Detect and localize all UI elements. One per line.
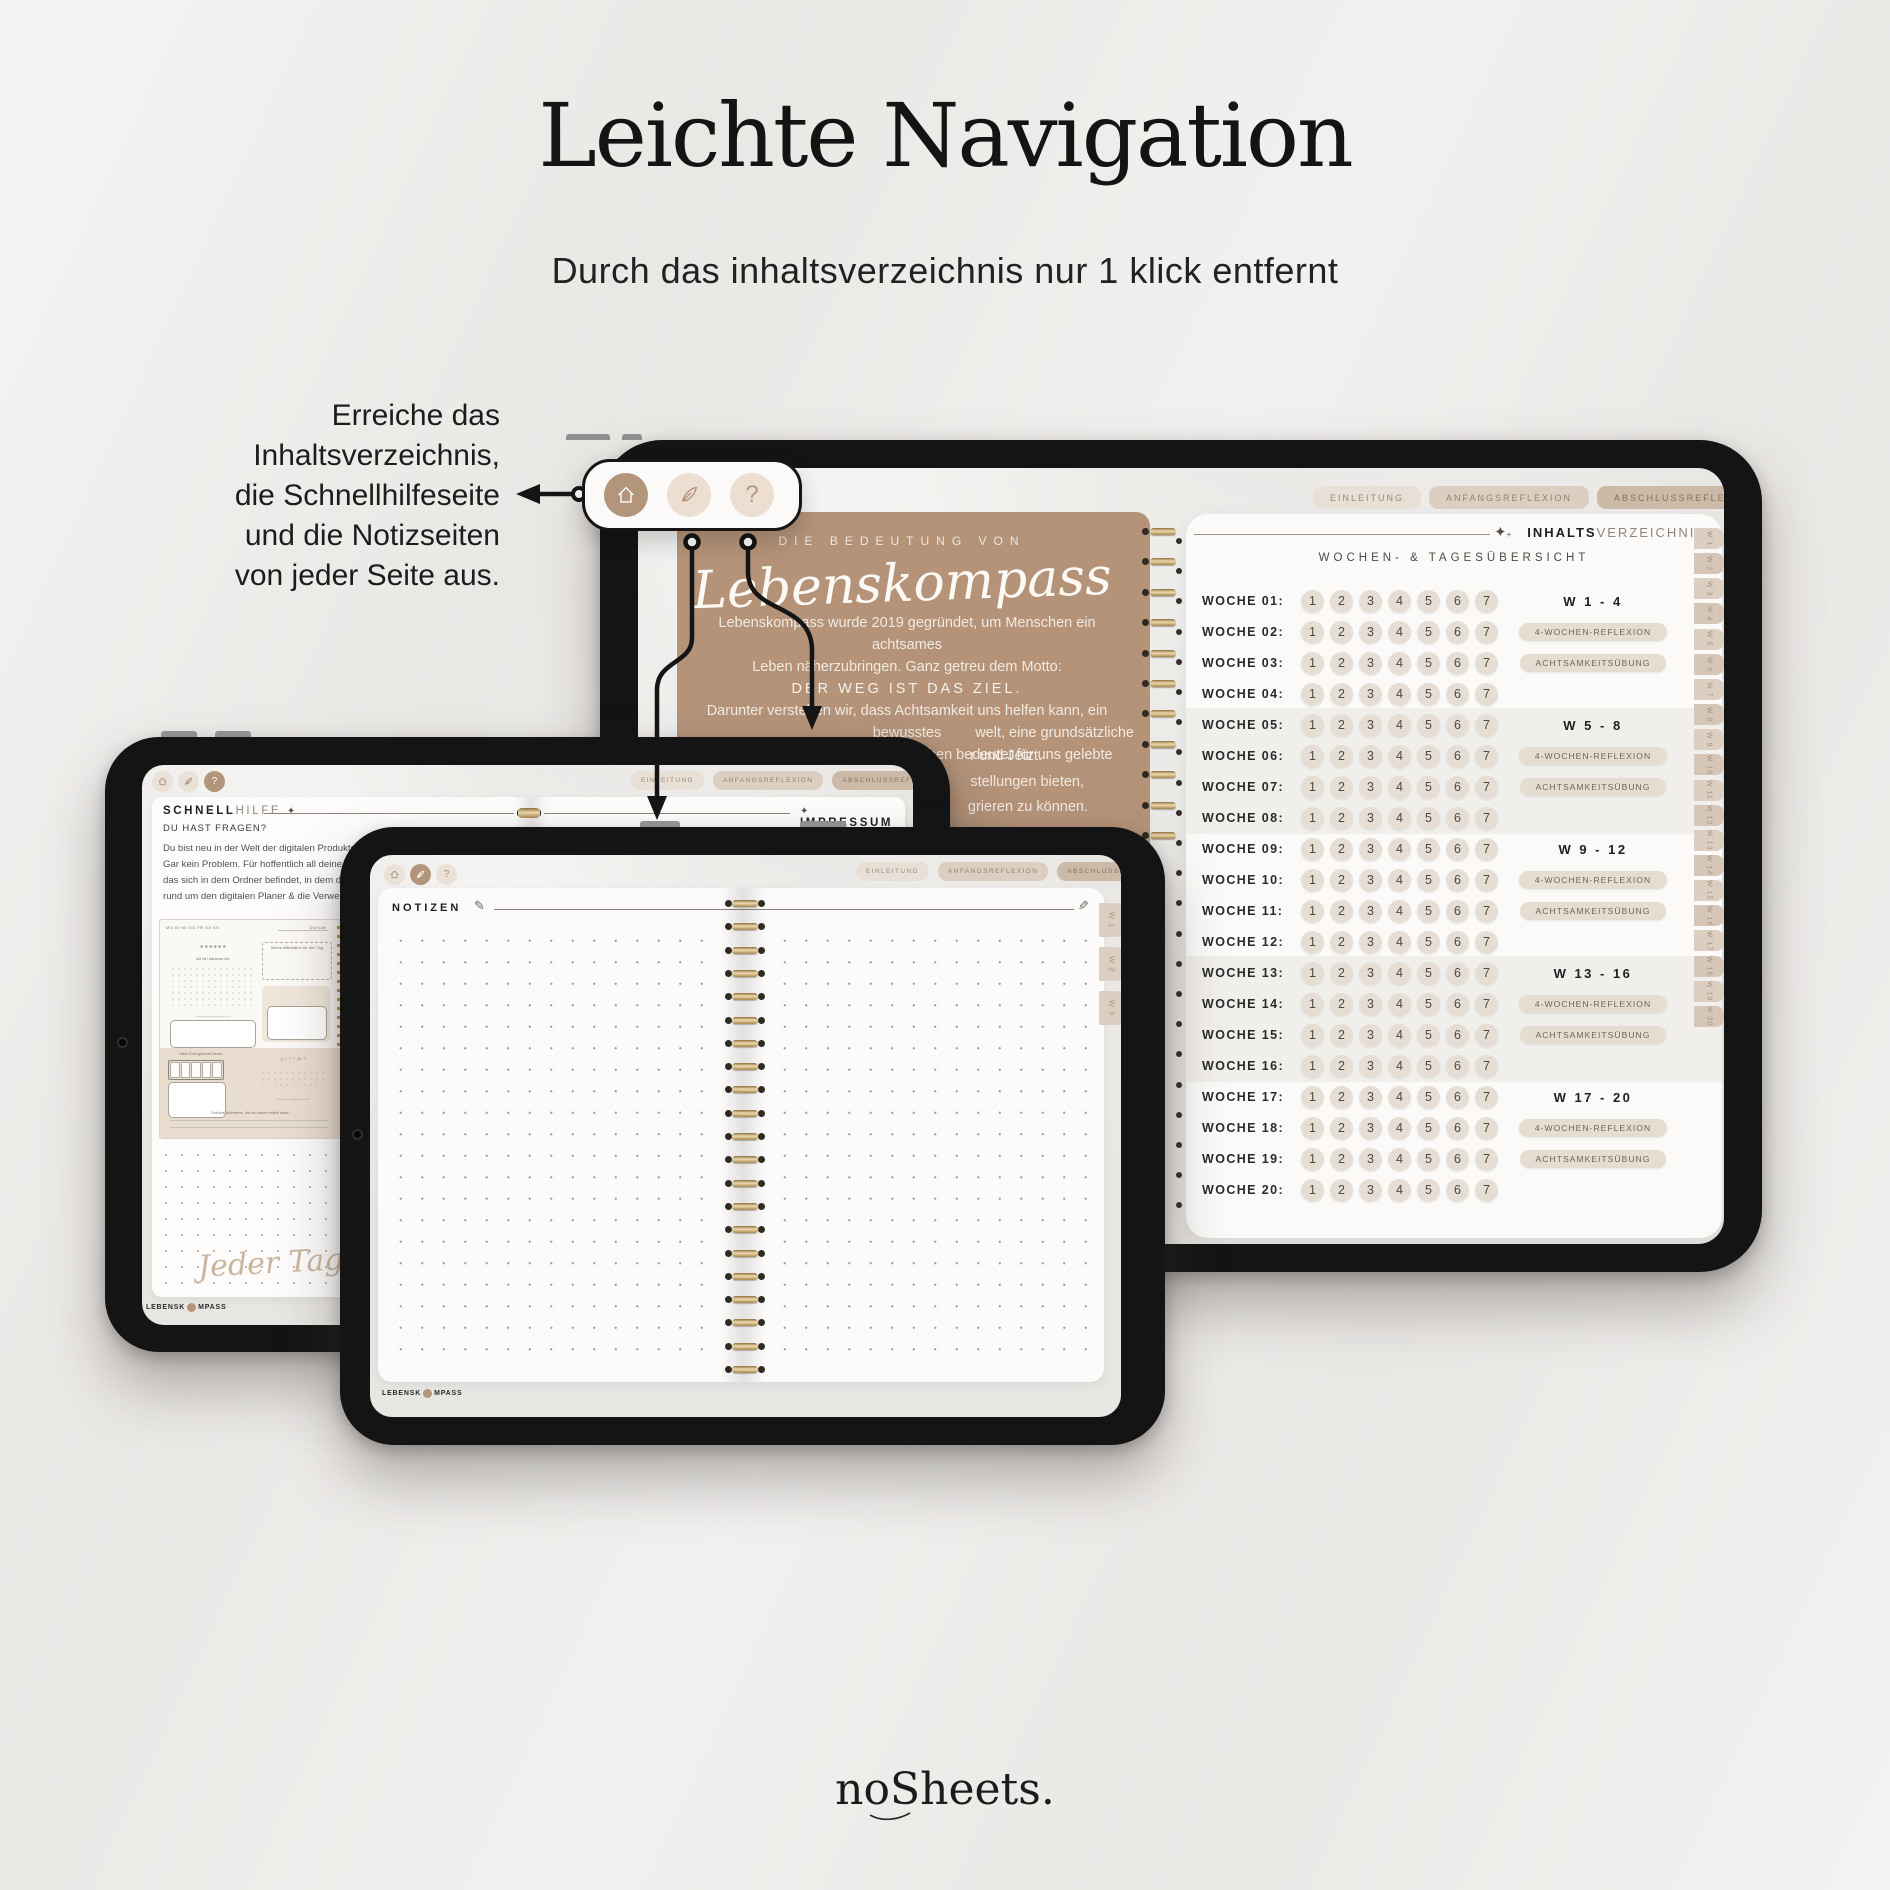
tab-abschlussreflexion[interactable]: ABSCHLUSSREFLEXION [1597, 486, 1724, 509]
dot-grid-right [774, 930, 1092, 1368]
spiral-coil [732, 970, 758, 977]
spiral-coil [732, 1086, 758, 1093]
tab-einleitung[interactable]: EINLEITUNG [1313, 486, 1421, 509]
day-link[interactable]: 3 [1359, 1179, 1382, 1202]
day-link[interactable]: 2 [1330, 1117, 1353, 1140]
week-label[interactable]: WOCHE 13: [1202, 966, 1301, 980]
page-nav-buttons: ? [152, 771, 225, 792]
side-tab-W12[interactable]: W 12 [1694, 805, 1724, 826]
day-link[interactable]: 7 [1475, 745, 1498, 768]
intro-line: DER WEG IST DAS ZIEL. [691, 678, 1123, 700]
mini-label: Mein Energielevel heute [166, 1051, 236, 1056]
pen-icon: ✎ [474, 898, 485, 914]
spiral-coil [1150, 741, 1176, 748]
day-link[interactable]: 4 [1388, 652, 1411, 675]
home-icon[interactable] [384, 864, 405, 885]
day-link[interactable]: 4 [1388, 900, 1411, 923]
day-link[interactable]: 4 [1388, 776, 1411, 799]
day-link[interactable]: 7 [1475, 1086, 1498, 1109]
day-link[interactable]: 4 [1388, 1117, 1411, 1140]
day-link[interactable]: 5 [1417, 962, 1440, 985]
day-link[interactable]: 3 [1359, 1148, 1382, 1171]
day-link[interactable]: 7 [1475, 621, 1498, 644]
side-tab-W18[interactable]: W 18 [1694, 956, 1724, 977]
toc-row: WOCHE 10:12345674-WOCHEN-REFLEXION [1186, 865, 1722, 896]
day-link[interactable]: 6 [1446, 1117, 1469, 1140]
mini-label: ✻ ✻ ✻ ✻ ✻ ✻ [168, 944, 258, 949]
day-link[interactable]: 2 [1330, 776, 1353, 799]
mini-label: △ ○ ♡ ☾ ◎ ☽ [256, 1056, 330, 1061]
day-link[interactable]: 1 [1301, 1055, 1324, 1078]
day-link[interactable]: 2 [1330, 714, 1353, 737]
week-label[interactable]: WOCHE 20: [1202, 1183, 1301, 1197]
achtsamkeit-pill[interactable]: ACHTSAMKEITSÜBUNG [1520, 778, 1667, 796]
spiral-dot [1176, 900, 1182, 906]
week-label[interactable]: WOCHE 18: [1202, 1121, 1301, 1135]
side-tab-W8[interactable]: W 8 [1694, 704, 1724, 725]
day-link[interactable]: 4 [1388, 683, 1411, 706]
day-link[interactable]: 1 [1301, 652, 1324, 675]
week-label[interactable]: WOCHE 15: [1202, 1028, 1301, 1042]
side-tab-W3[interactable]: W 3 [1099, 991, 1121, 1025]
day-link[interactable]: 6 [1446, 652, 1469, 675]
callout-line: von jeder Seite aus. [140, 556, 500, 596]
spiral-coil [732, 923, 758, 930]
spiral-coil [732, 1133, 758, 1140]
day-link[interactable]: 4 [1388, 1179, 1411, 1202]
divider [1194, 534, 1490, 535]
marketing-graphic: Leichte Navigation Durch das inhaltsverz… [0, 0, 1890, 1890]
spiral-coil [732, 993, 758, 1000]
spiral-coil [1150, 832, 1176, 839]
day-link[interactable]: 5 [1417, 621, 1440, 644]
day-link[interactable]: 5 [1417, 993, 1440, 1016]
day-link[interactable]: 3 [1359, 838, 1382, 861]
day-link[interactable]: 1 [1301, 838, 1324, 861]
day-link[interactable]: 7 [1475, 993, 1498, 1016]
day-link[interactable]: 6 [1446, 838, 1469, 861]
notizen-page[interactable]: NOTIZEN ✎ ✎ [378, 888, 1104, 1382]
day-link[interactable]: 7 [1475, 683, 1498, 706]
help-button[interactable]: ? [730, 473, 774, 517]
underline-squiggle [868, 1810, 932, 1822]
week-label[interactable]: WOCHE 07: [1202, 780, 1301, 794]
day-link[interactable]: 7 [1475, 776, 1498, 799]
spiral-coil [732, 1156, 758, 1163]
side-tab-W17[interactable]: W 17 [1694, 930, 1724, 951]
day-link[interactable]: 2 [1330, 838, 1353, 861]
reflexion-pill[interactable]: 4-WOCHEN-REFLEXION [1519, 871, 1667, 889]
day-link[interactable]: 4 [1388, 621, 1411, 644]
toc-row: WOCHE 02:12345674-WOCHEN-REFLEXION [1186, 617, 1722, 648]
day-link[interactable]: 3 [1359, 590, 1382, 613]
feather-pen-icon [678, 484, 700, 506]
day-link[interactable]: 4 [1388, 745, 1411, 768]
daily-page-thumbnail[interactable]: MO DI MI DO FR SA SODATUM ✻ ✻ ✻ ✻ ✻ ✻ Ic… [159, 919, 341, 1139]
day-link[interactable]: 4 [1388, 1148, 1411, 1171]
day-link[interactable]: 6 [1446, 931, 1469, 954]
day-link[interactable]: 6 [1446, 1055, 1469, 1078]
week-label[interactable]: WOCHE 08: [1202, 811, 1301, 825]
day-link[interactable]: 2 [1330, 1179, 1353, 1202]
day-link[interactable]: 2 [1330, 869, 1353, 892]
day-link[interactable]: 5 [1417, 745, 1440, 768]
day-link[interactable]: 4 [1388, 807, 1411, 830]
side-tab-W2[interactable]: W 2 [1694, 553, 1724, 574]
section-tabs: EINLEITUNGANFANGSREFLEXIONABSCHLUSSREFLE… [856, 862, 1121, 881]
toc-row: WOCHE 15:1234567ACHTSAMKEITSÜBUNG [1186, 1020, 1722, 1051]
day-link[interactable]: 1 [1301, 900, 1324, 923]
day-link[interactable]: 1 [1301, 745, 1324, 768]
spiral-coil [1150, 528, 1176, 535]
row-extra: ACHTSAMKEITSÜBUNG [1518, 1150, 1668, 1168]
day-link[interactable]: 2 [1330, 931, 1353, 954]
spiral-dot [1176, 1082, 1182, 1088]
achtsamkeit-pill[interactable]: ACHTSAMKEITSÜBUNG [1520, 1026, 1667, 1044]
day-link[interactable]: 6 [1446, 621, 1469, 644]
achtsamkeit-pill[interactable]: ACHTSAMKEITSÜBUNG [1520, 1150, 1667, 1168]
day-link[interactable]: 6 [1446, 590, 1469, 613]
tab-abschlussreflexion[interactable]: ABSCHLUSSREFLEXION [1057, 862, 1121, 881]
day-link[interactable]: 7 [1475, 652, 1498, 675]
day-link[interactable]: 7 [1475, 1055, 1498, 1078]
toc-row: WOCHE 08:1234567 [1186, 803, 1722, 834]
question-mark-icon: ? [745, 481, 758, 509]
day-link[interactable]: 5 [1417, 714, 1440, 737]
week-label[interactable]: WOCHE 16: [1202, 1059, 1301, 1073]
brand-logo: noSheets. [0, 1764, 1890, 1815]
day-link[interactable]: 6 [1446, 993, 1469, 1016]
day-link[interactable]: 7 [1475, 900, 1498, 923]
day-link[interactable]: 5 [1417, 1055, 1440, 1078]
reflexion-pill[interactable]: 4-WOCHEN-REFLEXION [1519, 995, 1667, 1013]
day-link[interactable]: 2 [1330, 1086, 1353, 1109]
day-link[interactable]: 7 [1475, 1148, 1498, 1171]
day-link[interactable]: 3 [1359, 869, 1382, 892]
side-tab-W9[interactable]: W 9 [1694, 729, 1724, 750]
day-link[interactable]: 3 [1359, 993, 1382, 1016]
day-link[interactable]: 5 [1417, 900, 1440, 923]
camera-icon [117, 1037, 128, 1048]
day-link[interactable]: 7 [1475, 807, 1498, 830]
day-link[interactable]: 4 [1388, 1024, 1411, 1047]
side-tab-W13[interactable]: W 13 [1694, 830, 1724, 851]
day-link[interactable]: 5 [1417, 1024, 1440, 1047]
row-extra: W 1 - 4 [1518, 594, 1668, 609]
row-extra: W 13 - 16 [1518, 966, 1668, 981]
spiral-coil [732, 1250, 758, 1257]
week-label[interactable]: WOCHE 06: [1202, 749, 1301, 763]
day-link[interactable]: 6 [1446, 1148, 1469, 1171]
day-link[interactable]: 3 [1359, 652, 1382, 675]
day-link[interactable]: 2 [1330, 1148, 1353, 1171]
spiral-dot [1176, 1051, 1182, 1057]
side-tab-W20[interactable]: W 20 [1694, 1006, 1724, 1027]
side-tab-W5[interactable]: W 5 [1694, 629, 1724, 650]
toc-row: WOCHE 09:1234567W 9 - 12 [1186, 834, 1722, 865]
tab-anfangsreflexion[interactable]: ANFANGSREFLEXION [713, 771, 823, 790]
help-icon[interactable]: ? [204, 771, 225, 792]
day-link[interactable]: 2 [1330, 590, 1353, 613]
day-link[interactable]: 3 [1359, 776, 1382, 799]
day-link[interactable]: 4 [1388, 869, 1411, 892]
mini-label: ________________ [168, 1012, 258, 1017]
day-link[interactable]: 1 [1301, 1179, 1324, 1202]
day-link[interactable]: 7 [1475, 590, 1498, 613]
day-link[interactable]: 3 [1359, 621, 1382, 644]
week-label[interactable]: WOCHE 14: [1202, 997, 1301, 1011]
pen-button[interactable] [667, 473, 711, 517]
day-link[interactable]: 6 [1446, 807, 1469, 830]
day-link[interactable]: 1 [1301, 869, 1324, 892]
day-link[interactable]: 1 [1301, 1086, 1324, 1109]
section-tabs: EINLEITUNGANFANGSREFLEXIONABSCHLUSSREFLE… [631, 771, 913, 790]
week-label[interactable]: WOCHE 12: [1202, 935, 1301, 949]
achtsamkeit-pill[interactable]: ACHTSAMKEITSÜBUNG [1520, 654, 1667, 672]
day-link[interactable]: 7 [1475, 1117, 1498, 1140]
day-link[interactable]: 1 [1301, 1024, 1324, 1047]
row-extra: W 9 - 12 [1518, 842, 1668, 857]
tab-einleitung[interactable]: EINLEITUNG [631, 771, 704, 790]
day-link[interactable]: 5 [1417, 1179, 1440, 1202]
row-extra: ACHTSAMKEITSÜBUNG [1518, 778, 1668, 796]
day-link[interactable]: 6 [1446, 1024, 1469, 1047]
day-link[interactable]: 1 [1301, 931, 1324, 954]
side-tab-W14[interactable]: W 14 [1694, 855, 1724, 876]
mini-evening-section: Mein Energielevel heute △ ○ ♡ ☾ ◎ ☽ ○———… [160, 1048, 340, 1138]
toc-row: WOCHE 12:1234567 [1186, 927, 1722, 958]
reflexion-pill[interactable]: 4-WOCHEN-REFLEXION [1519, 623, 1667, 641]
side-tab-W3[interactable]: W 3 [1694, 578, 1724, 599]
day-link[interactable]: 2 [1330, 652, 1353, 675]
day-link[interactable]: 3 [1359, 807, 1382, 830]
reflexion-pill[interactable]: 4-WOCHEN-REFLEXION [1519, 747, 1667, 765]
day-link[interactable]: 3 [1359, 900, 1382, 923]
pen-icon[interactable] [178, 771, 199, 792]
spiral-coil [732, 1296, 758, 1303]
spiral-dot [1176, 870, 1182, 876]
week-label[interactable]: WOCHE 09: [1202, 842, 1301, 856]
day-link[interactable]: 2 [1330, 1055, 1353, 1078]
spiral-dot [1176, 629, 1182, 635]
week-label[interactable]: WOCHE 05: [1202, 718, 1301, 732]
spiral-dot [1176, 810, 1182, 816]
day-link[interactable]: 1 [1301, 590, 1324, 613]
home-button[interactable] [604, 473, 648, 517]
tablet-volume-button [161, 731, 197, 737]
day-link[interactable]: 6 [1446, 745, 1469, 768]
side-tab-W15[interactable]: W 15 [1694, 880, 1724, 901]
day-link[interactable]: 2 [1330, 900, 1353, 923]
week-label[interactable]: WOCHE 01: [1202, 594, 1301, 608]
day-link[interactable]: 5 [1417, 776, 1440, 799]
toc-row: WOCHE 07:1234567ACHTSAMKEITSÜBUNG [1186, 772, 1722, 803]
row-extra: 4-WOCHEN-REFLEXION [1518, 1119, 1668, 1137]
day-link[interactable]: 6 [1446, 869, 1469, 892]
spiral-dot [1176, 1142, 1182, 1148]
mini-box [170, 1020, 256, 1048]
day-link[interactable]: 3 [1359, 1055, 1382, 1078]
side-tab-W4[interactable]: W 4 [1694, 603, 1724, 624]
day-link[interactable]: 6 [1446, 714, 1469, 737]
day-link[interactable]: 1 [1301, 993, 1324, 1016]
day-link[interactable]: 7 [1475, 962, 1498, 985]
day-link[interactable]: 1 [1301, 714, 1324, 737]
day-link[interactable]: 3 [1359, 745, 1382, 768]
day-link[interactable]: 7 [1475, 1024, 1498, 1047]
day-link[interactable]: 2 [1330, 993, 1353, 1016]
side-tab-W1[interactable]: W 1 [1694, 528, 1724, 549]
tab-anfangsreflexion[interactable]: ANFANGSREFLEXION [1429, 486, 1589, 509]
spiral-coil [732, 1226, 758, 1233]
row-extra: ACHTSAMKEITSÜBUNG [1518, 1026, 1668, 1044]
day-link[interactable]: 2 [1330, 745, 1353, 768]
day-link[interactable]: 5 [1417, 931, 1440, 954]
spiral-coil [732, 1366, 758, 1373]
spiral-dot [1176, 961, 1182, 967]
day-link[interactable]: 4 [1388, 962, 1411, 985]
day-link[interactable]: 2 [1330, 683, 1353, 706]
page-subtitle: Durch das inhaltsverzeichnis nur 1 klick… [0, 250, 1890, 292]
toc-subtitle: WOCHEN- & TAGESÜBERSICHT [1186, 552, 1722, 564]
tab-anfangsreflexion[interactable]: ANFANGSREFLEXION [938, 862, 1048, 881]
day-link[interactable]: 5 [1417, 838, 1440, 861]
day-link[interactable]: 5 [1417, 683, 1440, 706]
tablet-volume-button [215, 731, 251, 737]
day-link[interactable]: 7 [1475, 931, 1498, 954]
day-link[interactable]: 3 [1359, 1086, 1382, 1109]
spiral-dot [1176, 991, 1182, 997]
day-link[interactable]: 1 [1301, 683, 1324, 706]
day-link[interactable]: 6 [1446, 776, 1469, 799]
spiral-dot [1176, 598, 1182, 604]
day-link[interactable]: 2 [1330, 962, 1353, 985]
row-extra: 4-WOCHEN-REFLEXION [1518, 995, 1668, 1013]
spiral-dot [1176, 780, 1182, 786]
mini-label: Ich bin dankbar für: [168, 956, 258, 961]
side-tab-W11[interactable]: W 11 [1694, 780, 1724, 801]
side-tab-W16[interactable]: W 16 [1694, 905, 1724, 926]
week-label[interactable]: WOCHE 11: [1202, 904, 1301, 918]
day-link[interactable]: 5 [1417, 1117, 1440, 1140]
toc-row: WOCHE 18:12345674-WOCHEN-REFLEXION [1186, 1113, 1722, 1144]
day-link[interactable]: 4 [1388, 590, 1411, 613]
dot-grid-left [390, 930, 714, 1368]
side-tab-W19[interactable]: W 19 [1694, 981, 1724, 1002]
spiral-coil [732, 1063, 758, 1070]
day-link[interactable]: 3 [1359, 1117, 1382, 1140]
help-icon[interactable]: ? [436, 864, 457, 885]
battery-icon [168, 1060, 224, 1080]
day-link[interactable]: 5 [1417, 1086, 1440, 1109]
week-group-label: W 5 - 8 [1563, 718, 1622, 733]
tablet-volume-button [640, 821, 680, 827]
side-tab-W1[interactable]: W 1 [1099, 903, 1121, 937]
day-link[interactable]: 6 [1446, 900, 1469, 923]
notizen-screen: ? EINLEITUNGANFANGSREFLEXIONABSCHLUSSREF… [370, 855, 1121, 1417]
day-link[interactable]: 1 [1301, 1148, 1324, 1171]
divider [544, 813, 790, 814]
side-tab-W7[interactable]: W 7 [1694, 679, 1724, 700]
day-link[interactable]: 6 [1446, 683, 1469, 706]
day-link[interactable]: 5 [1417, 590, 1440, 613]
toc-row: WOCHE 01:1234567W 1 - 4 [1186, 586, 1722, 617]
day-link[interactable]: 4 [1388, 993, 1411, 1016]
day-link[interactable]: 7 [1475, 869, 1498, 892]
day-link[interactable]: 1 [1301, 1117, 1324, 1140]
day-link[interactable]: 1 [1301, 807, 1324, 830]
row-extra: 4-WOCHEN-REFLEXION [1518, 623, 1668, 641]
day-link[interactable]: 3 [1359, 1024, 1382, 1047]
day-link[interactable]: 2 [1330, 807, 1353, 830]
spiral-dot [1176, 749, 1182, 755]
row-extra: 4-WOCHEN-REFLEXION [1518, 747, 1668, 765]
day-link[interactable]: 7 [1475, 714, 1498, 737]
day-link[interactable]: 2 [1330, 621, 1353, 644]
day-link[interactable]: 3 [1359, 962, 1382, 985]
day-link[interactable]: 6 [1446, 962, 1469, 985]
day-link[interactable]: 7 [1475, 1179, 1498, 1202]
day-link[interactable]: 3 [1359, 683, 1382, 706]
tab-abschlussreflexion[interactable]: ABSCHLUSSREFLEXION [832, 771, 913, 790]
week-label[interactable]: WOCHE 17: [1202, 1090, 1301, 1104]
day-link[interactable]: 7 [1475, 838, 1498, 861]
toc-row: WOCHE 04:1234567 [1186, 679, 1722, 710]
day-link[interactable]: 2 [1330, 1024, 1353, 1047]
day-link[interactable]: 1 [1301, 621, 1324, 644]
day-link[interactable]: 4 [1388, 1086, 1411, 1109]
spiral-dot [1176, 840, 1182, 846]
callout-line: Inhaltsverzeichnis, [140, 436, 500, 476]
day-link[interactable]: 3 [1359, 714, 1382, 737]
sparkle-icon: ✦+ [1494, 523, 1511, 541]
reflexion-pill[interactable]: 4-WOCHEN-REFLEXION [1519, 1119, 1667, 1137]
tab-einleitung[interactable]: EINLEITUNG [856, 862, 929, 881]
toc-page: ✦+ INHALTSVERZEICHNIS WOCHEN- & TAGESÜBE… [1186, 514, 1722, 1238]
side-tab-W6[interactable]: W 6 [1694, 654, 1724, 675]
day-link[interactable]: 1 [1301, 962, 1324, 985]
day-link[interactable]: 4 [1388, 714, 1411, 737]
day-link[interactable]: 6 [1446, 1086, 1469, 1109]
day-link[interactable]: 3 [1359, 931, 1382, 954]
day-link[interactable]: 5 [1417, 869, 1440, 892]
pen-icon[interactable] [410, 864, 431, 885]
side-tab-W10[interactable]: W 10 [1694, 754, 1724, 775]
navigation-panel: ? [582, 459, 802, 531]
achtsamkeit-pill[interactable]: ACHTSAMKEITSÜBUNG [1520, 902, 1667, 920]
day-link[interactable]: 5 [1417, 1148, 1440, 1171]
week-label[interactable]: WOCHE 04: [1202, 687, 1301, 701]
week-label[interactable]: WOCHE 10: [1202, 873, 1301, 887]
day-link[interactable]: 4 [1388, 838, 1411, 861]
day-link[interactable]: 1 [1301, 776, 1324, 799]
day-link[interactable]: 4 [1388, 1055, 1411, 1078]
day-link[interactable]: 5 [1417, 652, 1440, 675]
spiral-coil [1150, 710, 1176, 717]
side-tab-W2[interactable]: W 2 [1099, 947, 1121, 981]
pen-icon: ✎ [1078, 898, 1089, 914]
home-icon[interactable] [152, 771, 173, 792]
week-label[interactable]: WOCHE 19: [1202, 1152, 1301, 1166]
week-label[interactable]: WOCHE 03: [1202, 656, 1301, 670]
day-link[interactable]: 6 [1446, 1179, 1469, 1202]
spiral-coil [732, 1110, 758, 1117]
day-link[interactable]: 4 [1388, 931, 1411, 954]
toc-row: WOCHE 05:1234567W 5 - 8 [1186, 710, 1722, 741]
day-link[interactable]: 5 [1417, 807, 1440, 830]
toc-header: ✦+ INHALTSVERZEICHNIS [1186, 522, 1706, 546]
week-label[interactable]: WOCHE 02: [1202, 625, 1301, 639]
